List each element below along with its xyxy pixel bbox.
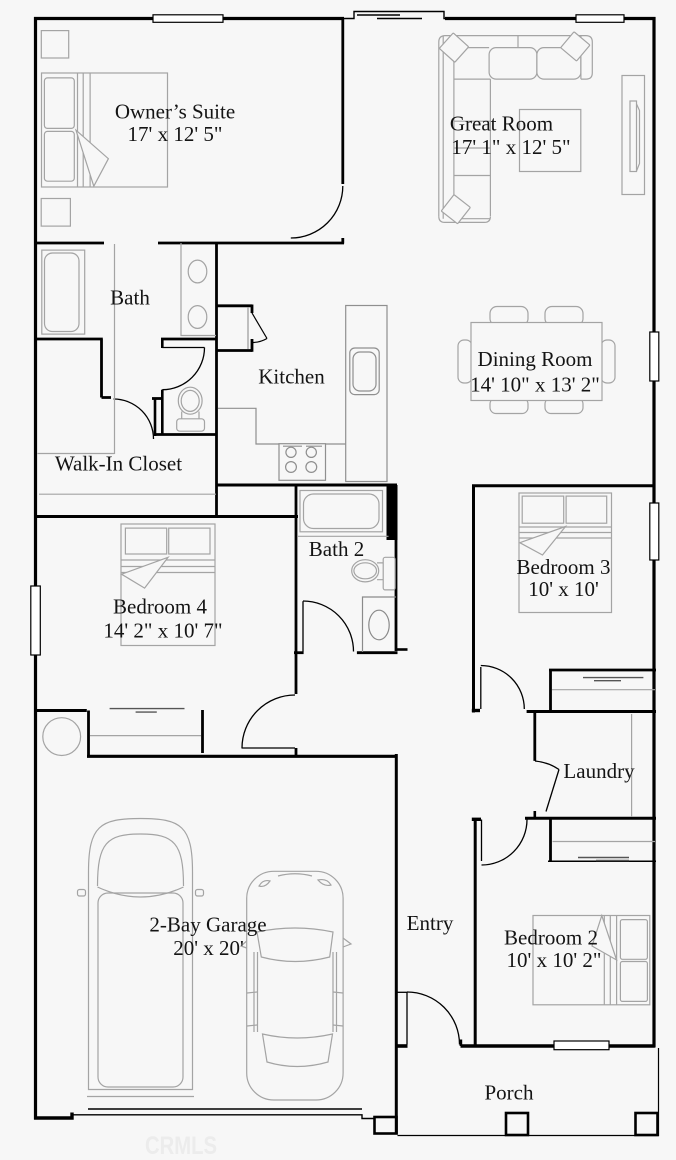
svg-text:CRMLS: CRMLS [145, 1132, 217, 1160]
svg-text:Bath: Bath [110, 286, 150, 310]
svg-text:2-Bay Garage: 2-Bay Garage [149, 913, 266, 937]
svg-text:17' 1" x 12' 5": 17' 1" x 12' 5" [451, 135, 570, 159]
svg-text:Laundry: Laundry [563, 759, 635, 783]
svg-text:Bedroom 4: Bedroom 4 [113, 595, 207, 619]
svg-text:14' 10" x 13' 2": 14' 10" x 13' 2" [470, 373, 600, 397]
svg-text:Bath 2: Bath 2 [309, 537, 364, 561]
svg-text:Great Room: Great Room [450, 112, 553, 136]
svg-text:Entry: Entry [407, 911, 454, 935]
svg-text:10' x 10': 10' x 10' [528, 577, 599, 601]
svg-text:Owner’s Suite: Owner’s Suite [115, 100, 235, 124]
svg-text:Walk-In Closet: Walk-In Closet [55, 452, 182, 476]
svg-text:14' 2" x 10' 7": 14' 2" x 10' 7" [103, 619, 222, 643]
svg-text:20' x 20': 20' x 20' [173, 936, 244, 960]
svg-text:Bedroom 3: Bedroom 3 [517, 555, 611, 579]
svg-text:Kitchen: Kitchen [258, 365, 325, 389]
svg-text:10' x 10' 2": 10' x 10' 2" [507, 948, 602, 972]
svg-text:Dining Room: Dining Room [478, 347, 593, 371]
svg-text:17' x 12' 5": 17' x 12' 5" [128, 122, 223, 146]
svg-text:Bedroom 2: Bedroom 2 [504, 926, 598, 950]
svg-text:Porch: Porch [485, 1081, 534, 1105]
